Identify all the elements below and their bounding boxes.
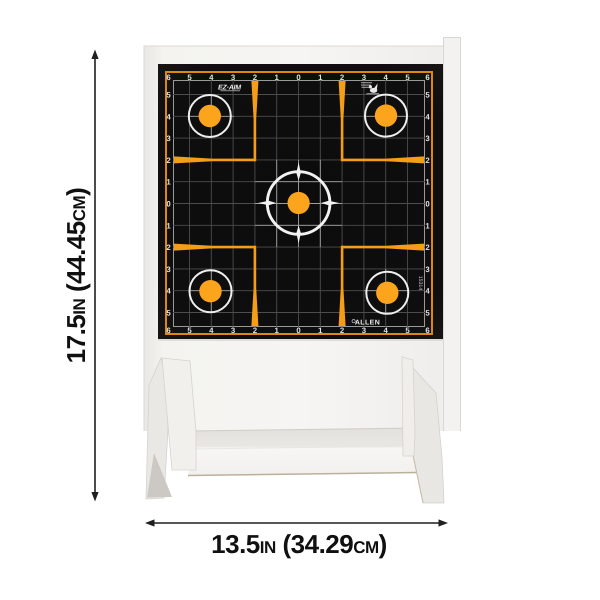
svg-text:4: 4: [425, 287, 430, 296]
svg-text:1: 1: [318, 326, 323, 335]
svg-text:2: 2: [253, 326, 258, 335]
svg-text:4: 4: [166, 287, 171, 296]
svg-text:1: 1: [166, 221, 171, 230]
svg-text:3: 3: [231, 73, 236, 82]
svg-text:4: 4: [166, 112, 171, 121]
svg-text:1: 1: [166, 178, 171, 187]
svg-text:6: 6: [166, 73, 171, 82]
svg-text:5: 5: [425, 91, 430, 100]
svg-text:0: 0: [166, 200, 171, 209]
svg-text:EZ·AIM: EZ·AIM: [218, 84, 241, 91]
svg-text:2: 2: [166, 243, 171, 252]
svg-text:2: 2: [253, 73, 258, 82]
svg-text:0: 0: [425, 200, 430, 209]
svg-text:5: 5: [405, 326, 410, 335]
svg-text:5: 5: [187, 326, 192, 335]
svg-text:0: 0: [296, 326, 301, 335]
svg-text:5: 5: [425, 309, 430, 318]
svg-text:6: 6: [425, 73, 430, 82]
svg-text:3: 3: [362, 326, 367, 335]
svg-text:6: 6: [425, 326, 430, 335]
svg-text:2: 2: [166, 156, 171, 165]
svg-text:1: 1: [275, 73, 280, 82]
svg-text:5: 5: [187, 73, 192, 82]
svg-text:5: 5: [166, 91, 171, 100]
svg-text:1: 1: [425, 178, 430, 187]
svg-text:5: 5: [405, 73, 410, 82]
svg-text:4: 4: [384, 73, 389, 82]
svg-text:3: 3: [166, 265, 171, 274]
svg-text:2: 2: [425, 243, 430, 252]
svg-text:3: 3: [362, 73, 367, 82]
svg-text:15314: 15314: [417, 276, 423, 291]
svg-text:2: 2: [425, 156, 430, 165]
svg-text:3: 3: [166, 134, 171, 143]
svg-text:3: 3: [425, 134, 430, 143]
svg-text:4: 4: [425, 112, 430, 121]
svg-text:5: 5: [166, 309, 171, 318]
svg-text:0: 0: [296, 73, 301, 82]
svg-text:3: 3: [425, 265, 430, 274]
svg-text:6: 6: [166, 326, 171, 335]
svg-text:1: 1: [275, 326, 280, 335]
svg-text:3: 3: [231, 326, 236, 335]
svg-text:4: 4: [209, 326, 214, 335]
svg-text:1: 1: [318, 73, 323, 82]
svg-text:2: 2: [340, 73, 345, 82]
svg-text:4: 4: [209, 73, 214, 82]
svg-text:4: 4: [384, 326, 389, 335]
svg-text:2: 2: [340, 326, 345, 335]
svg-text:1: 1: [425, 221, 430, 230]
svg-text:ALLEN: ALLEN: [355, 320, 380, 327]
